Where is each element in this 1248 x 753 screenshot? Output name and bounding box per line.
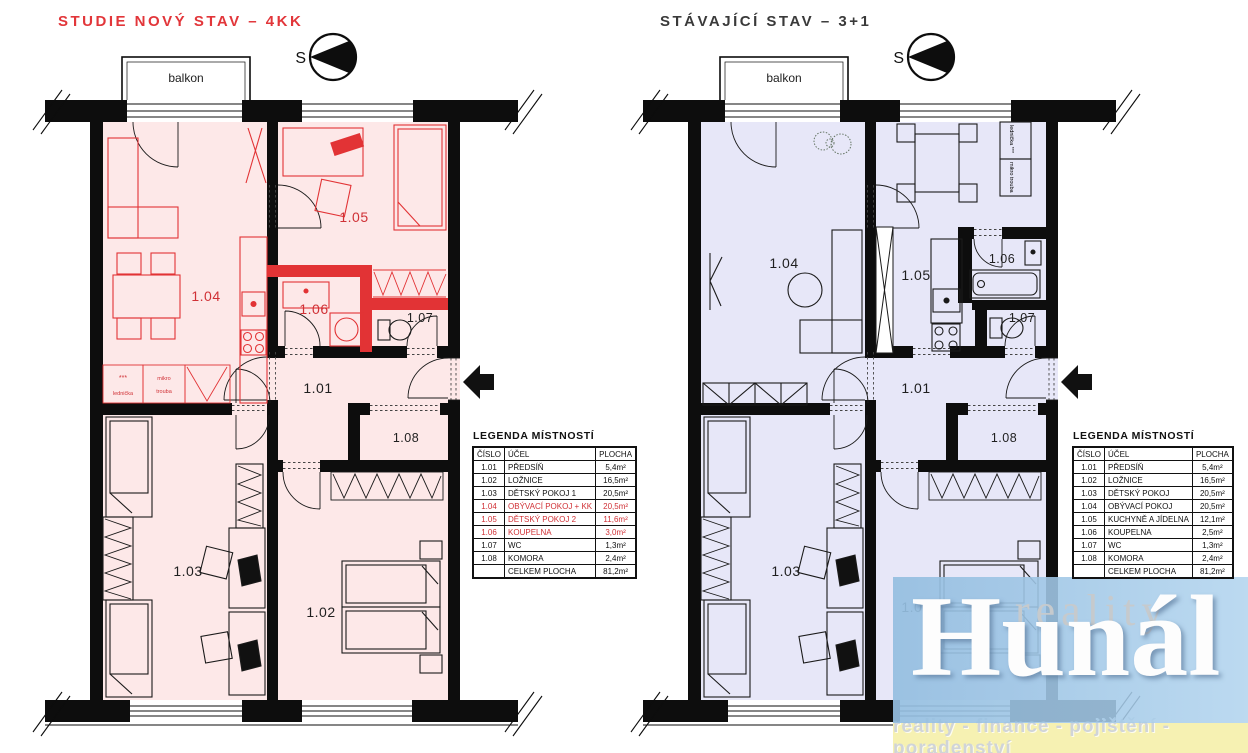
legend-cell-plocha: 20,5m² <box>596 487 636 500</box>
right-compass-icon: S <box>893 34 954 80</box>
legend-cell-cislo: 1.04 <box>473 500 505 513</box>
legend-cell-plocha: 12,1m² <box>1192 513 1232 526</box>
legend-cell-plocha: 81,2m² <box>596 565 636 579</box>
legend-cell-ucel: CELKEM PLOCHA <box>1105 565 1193 579</box>
legend-cell-cislo: 1.08 <box>1073 552 1105 565</box>
legend-row: 1.06KOUPELNA2,5m² <box>1073 526 1233 539</box>
legend-cell-ucel: LOŽNICE <box>1105 474 1193 487</box>
legend-row-highlight: 1.05DĚTSKÝ POKOJ 211,6m² <box>473 513 636 526</box>
legend-cell-cislo: 1.02 <box>473 474 505 487</box>
legend-cell-cislo: 1.05 <box>473 513 505 526</box>
right-legend-title: LEGENDA MÍSTNOSTÍ <box>1073 430 1236 442</box>
legend-cell-plocha: 20,5m² <box>1192 487 1232 500</box>
legend-cell-cislo: 1.08 <box>473 552 505 565</box>
legend-cell-plocha: 16,5m² <box>596 474 636 487</box>
legend-cell-cislo: 1.07 <box>1073 539 1105 552</box>
watermark-brand-main: Hunál <box>911 577 1220 699</box>
left-room-label-1-05: 1.05 <box>339 209 368 225</box>
left-room-label-1-03: 1.03 <box>173 563 202 579</box>
legend-cell-cislo: 1.01 <box>473 461 505 474</box>
legend-cell-ucel: OBÝVACÍ POKOJ + KK <box>505 500 596 513</box>
legend-cell-cislo: 1.05 <box>1073 513 1105 526</box>
legend-cell-cislo <box>473 565 505 579</box>
legend-cell-ucel: WC <box>1105 539 1193 552</box>
left-room-label-1-08: 1.08 <box>393 431 419 445</box>
legend-cell-cislo <box>1073 565 1105 579</box>
right-legend-table: ČÍSLO ÚČEL PLOCHA 1.01PŘEDSÍŇ5,4m² 1.02L… <box>1072 446 1234 579</box>
right-balcony-label: balkon <box>766 71 801 85</box>
left-entrance-arrow-icon <box>463 365 494 399</box>
left-legend: LEGENDA MÍSTNOSTÍ ČÍSLO ÚČEL PLOCHA 1.01… <box>472 430 636 579</box>
legend-row: 1.05KUCHYNĚ A JÍDELNA12,1m² <box>1073 513 1233 526</box>
legend-cell-ucel: KOUPELNA <box>1105 526 1193 539</box>
right-room-label-1-06: 1.06 <box>989 252 1015 266</box>
right-room-label-1-05: 1.05 <box>901 267 930 283</box>
legend-cell-plocha: 3,0m² <box>596 526 636 539</box>
right-entrance-arrow-icon <box>1061 365 1092 399</box>
legend-cell-plocha: 2,5m² <box>1192 526 1232 539</box>
right-fridge-label: lednička *** <box>1008 125 1014 154</box>
left-balcony-label: balkon <box>168 71 203 85</box>
oven-label: trouba <box>156 389 173 395</box>
legend-row: 1.07WC1,3m² <box>1073 539 1233 552</box>
legend-cell-plocha: 20,5m² <box>1192 500 1232 513</box>
right-room-label-1-03: 1.03 <box>771 563 800 579</box>
legend-row: 1.03DĚTSKÝ POKOJ20,5m² <box>1073 487 1233 500</box>
legend-cell-cislo: 1.06 <box>473 526 505 539</box>
realty-watermark: reality Hunál reality - finance - pojišt… <box>893 577 1248 753</box>
left-legend-table: ČÍSLO ÚČEL PLOCHA 1.01PŘEDSÍŇ5,4m² 1.02L… <box>472 446 637 579</box>
legend-cell-cislo: 1.04 <box>1073 500 1105 513</box>
legend-cell-ucel: OBÝVACÍ POKOJ <box>1105 500 1193 513</box>
legend-header-row: ČÍSLO ÚČEL PLOCHA <box>1073 447 1233 461</box>
legend-cell-ucel: DĚTSKÝ POKOJ <box>1105 487 1193 500</box>
left-room-label-1-06: 1.06 <box>299 301 328 317</box>
legend-cell-ucel: CELKEM PLOCHA <box>505 565 596 579</box>
fridge-stars-label: *** <box>119 375 127 382</box>
legend-cell-ucel: PŘEDSÍŇ <box>1105 461 1193 474</box>
left-top-wall <box>45 100 518 122</box>
legend-header-plocha: PLOCHA <box>596 447 636 461</box>
legend-header-row: ČÍSLO ÚČEL PLOCHA <box>473 447 636 461</box>
legend-cell-cislo: 1.07 <box>473 539 505 552</box>
left-floor-plan: balkon S <box>0 0 598 753</box>
legend-header-cislo: ČÍSLO <box>473 447 505 461</box>
left-compass-label: S <box>295 50 306 67</box>
left-legend-title: LEGENDA MÍSTNOSTÍ <box>473 430 636 442</box>
right-balcony: balkon <box>720 57 848 102</box>
left-room-label-1-01: 1.01 <box>303 380 332 396</box>
right-room-label-1-01: 1.01 <box>901 380 930 396</box>
right-oven-label: mikro trouba <box>1008 162 1014 194</box>
left-balcony: balkon <box>122 57 250 102</box>
legend-cell-ucel: DĚTSKÝ POKOJ 1 <box>505 487 596 500</box>
legend-cell-ucel: DĚTSKÝ POKOJ 2 <box>505 513 596 526</box>
left-room-label-1-02: 1.02 <box>306 604 335 620</box>
legend-cell-cislo: 1.03 <box>473 487 505 500</box>
legend-cell-plocha: 81,2m² <box>1192 565 1232 579</box>
legend-cell-ucel: KOMORA <box>505 552 596 565</box>
right-room-label-1-07: 1.07 <box>1009 311 1035 325</box>
legend-row: 1.02LOŽNICE16,5m² <box>1073 474 1233 487</box>
legend-cell-plocha: 5,4m² <box>596 461 636 474</box>
legend-row: 1.04OBÝVACÍ POKOJ20,5m² <box>1073 500 1233 513</box>
legend-header-ucel: ÚČEL <box>505 447 596 461</box>
legend-row: 1.01PŘEDSÍŇ5,4m² <box>473 461 636 474</box>
legend-cell-ucel: KOUPELNA <box>505 526 596 539</box>
legend-cell-plocha: 1,3m² <box>596 539 636 552</box>
legend-cell-plocha: 1,3m² <box>1192 539 1232 552</box>
legend-row-highlight: 1.06KOUPELNA3,0m² <box>473 526 636 539</box>
right-room-label-1-08: 1.08 <box>991 431 1017 445</box>
fridge-label: lednička <box>113 391 134 397</box>
legend-row: 1.07WC1,3m² <box>473 539 636 552</box>
right-legend: LEGENDA MÍSTNOSTÍ ČÍSLO ÚČEL PLOCHA 1.01… <box>1072 430 1236 579</box>
legend-cell-ucel: PŘEDSÍŇ <box>505 461 596 474</box>
legend-cell-cislo: 1.02 <box>1073 474 1105 487</box>
legend-row-highlight: 1.04OBÝVACÍ POKOJ + KK20,5m² <box>473 500 636 513</box>
legend-cell-plocha: 11,6m² <box>596 513 636 526</box>
legend-total-row: CELKEM PLOCHA81,2m² <box>473 565 636 579</box>
legend-header-cislo: ČÍSLO <box>1073 447 1105 461</box>
left-room-label-1-04: 1.04 <box>191 288 220 304</box>
legend-cell-ucel: LOŽNICE <box>505 474 596 487</box>
left-compass-icon: S <box>295 34 356 80</box>
micro-label: mikro <box>157 376 170 382</box>
legend-row: 1.03DĚTSKÝ POKOJ 120,5m² <box>473 487 636 500</box>
legend-cell-ucel: KUCHYNĚ A JÍDELNA <box>1105 513 1193 526</box>
right-room-label-1-04: 1.04 <box>769 255 798 271</box>
legend-header-ucel: ÚČEL <box>1105 447 1193 461</box>
right-shaft <box>876 227 893 353</box>
watermark-tagline: reality - finance - pojištění - poradens… <box>893 723 1248 753</box>
legend-cell-plocha: 2,4m² <box>1192 552 1232 565</box>
legend-cell-ucel: WC <box>505 539 596 552</box>
legend-cell-plocha: 5,4m² <box>1192 461 1232 474</box>
legend-cell-ucel: KOMORA <box>1105 552 1193 565</box>
legend-cell-plocha: 16,5m² <box>1192 474 1232 487</box>
legend-header-plocha: PLOCHA <box>1192 447 1232 461</box>
right-compass-label: S <box>893 50 904 67</box>
legend-row: 1.01PŘEDSÍŇ5,4m² <box>1073 461 1233 474</box>
watermark-logo-panel: reality Hunál <box>893 577 1248 723</box>
legend-cell-cislo: 1.01 <box>1073 461 1105 474</box>
legend-cell-cislo: 1.03 <box>1073 487 1105 500</box>
blueprint-page: STUDIE NOVÝ STAV – 4KK STÁVAJÍCÍ STAV – … <box>0 0 1248 753</box>
left-room-label-1-07: 1.07 <box>407 311 433 325</box>
right-top-wall <box>643 100 1116 122</box>
legend-total-row: CELKEM PLOCHA81,2m² <box>1073 565 1233 579</box>
legend-cell-plocha: 2,4m² <box>596 552 636 565</box>
legend-row: 1.02LOŽNICE16,5m² <box>473 474 636 487</box>
left-bottom-wall <box>45 700 518 722</box>
legend-row: 1.08KOMORA2,4m² <box>473 552 636 565</box>
legend-cell-cislo: 1.06 <box>1073 526 1105 539</box>
legend-cell-plocha: 20,5m² <box>596 500 636 513</box>
legend-row: 1.08KOMORA2,4m² <box>1073 552 1233 565</box>
